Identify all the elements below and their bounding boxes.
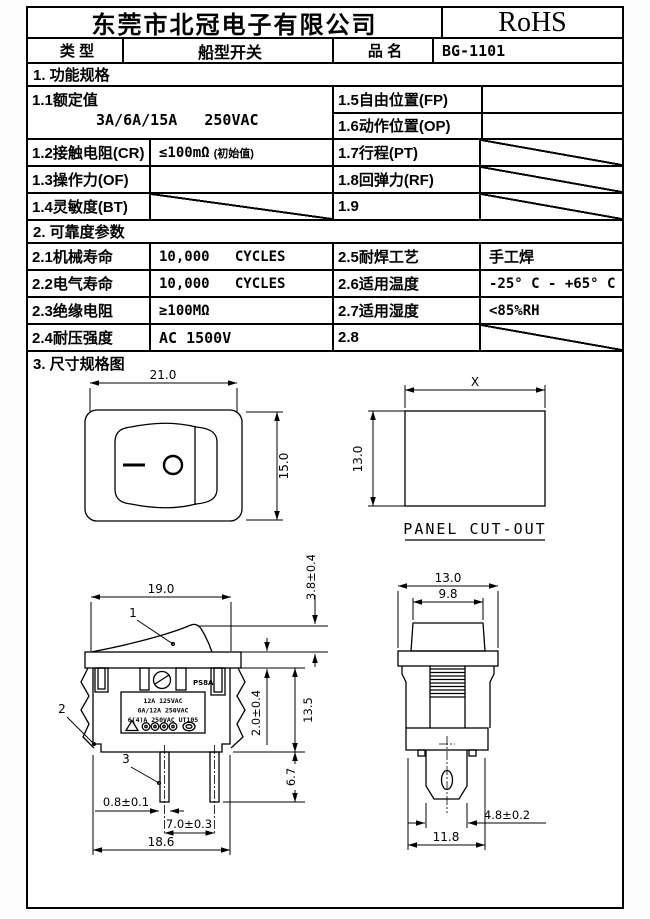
front-rocker [411, 623, 485, 651]
company-name: 东莞市北冠电子有限公司 [28, 8, 441, 37]
type-value: 船型开关 [122, 39, 332, 62]
rated-block-row: 1.1额定值 3A/6A/15A 250VAC 1.5自由位置(FP) 1.6动… [28, 87, 622, 140]
rohs-mark: RoHS [441, 8, 622, 37]
elec-temp-row: 2.2电气寿命 10,000 CYCLES 2.6适用温度 -25° C - +… [28, 271, 622, 298]
left-latch-inner [98, 668, 105, 689]
panel-cutout-caption: PANEL CUT-OUT [403, 520, 546, 538]
of-rf-row: 1.3操作力(OF) 1.8回弹力(RF) [28, 167, 622, 194]
n28-value-na [479, 325, 622, 350]
front-terminal [426, 750, 467, 799]
elec-label: 2.2电气寿命 [28, 271, 149, 296]
screw-slot [155, 675, 169, 684]
panel-cutout-drawing: X 13.0 PANEL CUT-OUT [348, 368, 578, 553]
product-row: 类 型 船型开关 品 名 BG-1101 [28, 39, 622, 64]
bt-19-row: 1.4灵敏度(BT) 1.9 [28, 194, 622, 221]
section2-row: 2. 可靠度参数 [28, 221, 622, 244]
right-latch-inner [214, 668, 222, 692]
pt-label: 1.7行程(PT) [332, 140, 479, 165]
terminal-length-text: 6.7 [284, 768, 298, 786]
flange-thickness-dim: 2.0±0.4 [249, 638, 267, 745]
cr-label: 1.2接触电阻(CR) [28, 140, 149, 165]
mold-marking: PS8A [193, 679, 214, 687]
section1-row: 1. 功能规格 [28, 64, 622, 87]
right-spring-clip [231, 668, 245, 748]
temp-value: -25° C - +65° C [479, 271, 622, 296]
name-value: BG-1101 [432, 39, 622, 62]
fp-row: 1.5自由位置(FP) [334, 87, 622, 114]
fp-op-block: 1.5自由位置(FP) 1.6动作位置(OP) [332, 87, 622, 138]
side-bottom-width-text: 18.6 [148, 835, 175, 849]
of-label: 1.3操作力(OF) [28, 167, 149, 192]
rated-value: 3A/6A/15A 250VAC [32, 111, 328, 129]
cutout-width-dim: X [405, 375, 545, 408]
flange-thickness-text: 2.0±0.4 [249, 690, 263, 736]
mech-label: 2.1机械寿命 [28, 244, 149, 269]
off-symbol-icon [164, 456, 182, 474]
rf-value-na [479, 167, 622, 192]
fp-value-empty [481, 87, 622, 112]
cr-note: (初始值) [210, 145, 254, 161]
left-post [140, 668, 149, 690]
cr-value: ≤100mΩ [151, 145, 210, 161]
side-top-width-dim: 19.0 [91, 582, 231, 651]
callout-2-text: 2 [58, 702, 66, 716]
volt-28-row: 2.4耐压强度 AC 1500V 2.8 [28, 325, 622, 352]
op-label: 1.6动作位置(OP) [334, 114, 481, 139]
cutout-width-text: X [471, 375, 479, 389]
rocker-profile [91, 624, 212, 652]
bt-label: 1.4灵敏度(BT) [28, 194, 149, 219]
cr-value-cell: ≤100mΩ (初始值) [149, 140, 332, 165]
mech-value: 10,000 CYCLES [149, 244, 332, 269]
volt-value: AC 1500V [149, 325, 332, 350]
rated-cell: 1.1额定值 3A/6A/15A 250VAC [28, 87, 332, 138]
body-height-text: 13.5 [301, 697, 315, 723]
top-view-width-text: 21.0 [150, 368, 177, 382]
ins-value: ≥100MΩ [149, 298, 332, 323]
solder-label: 2.5耐焊工艺 [332, 244, 479, 269]
section1-title: 1. 功能规格 [28, 64, 622, 85]
mech-solder-row: 2.1机械寿命 10,000 CYCLES 2.5耐焊工艺 手工焊 [28, 244, 622, 271]
n19-value-na [479, 194, 622, 219]
hum-value: <85%RH [479, 298, 622, 323]
rating-line1: 12A 125VAC [143, 697, 182, 705]
top-view-width-dim: 21.0 [90, 368, 237, 412]
mounting-flange [85, 652, 241, 668]
rf-label: 1.8回弹力(RF) [332, 167, 479, 192]
front-base-width-dim: 11.8 [408, 758, 485, 850]
terminal-thickness-text: 0.8±0.1 [103, 795, 149, 809]
bt-value-na [149, 194, 332, 219]
solder-value: 手工焊 [479, 244, 622, 269]
front-body-left [402, 666, 406, 728]
callout-3-text: 3 [122, 752, 130, 766]
terminal-pitch-dim: 7.0±0.3 [165, 817, 215, 833]
name-label: 品 名 [332, 39, 432, 62]
ins-label: 2.3绝缘电阻 [28, 298, 149, 323]
top-view-height-text: 15.0 [277, 453, 291, 480]
front-view-drawing: 13.0 9.8 [368, 568, 588, 860]
front-tab-left [418, 750, 425, 756]
front-tab-right [469, 750, 476, 756]
front-flange [398, 651, 498, 666]
cutout-height-dim: 13.0 [351, 411, 405, 506]
rocker-height-text: 3.8±0.4 [304, 555, 318, 600]
top-view-height-dim: 15.0 [246, 412, 291, 520]
terminal-pitch-text: 7.0±0.3 [166, 817, 212, 831]
front-neck-ribs [430, 666, 465, 728]
datasheet-page: 东莞市北冠电子有限公司 RoHS 类 型 船型开关 品 名 BG-1101 1.… [0, 0, 650, 919]
terminal-length-dim: 6.7 [223, 752, 305, 802]
front-rocker-width-dim: 9.8 [413, 587, 483, 620]
temp-label: 2.6适用温度 [332, 271, 479, 296]
cutout-rect [405, 411, 545, 506]
callout-3: 3 [122, 752, 160, 784]
top-view-drawing: 21.0 15.0 [55, 368, 305, 538]
right-post [176, 668, 186, 690]
front-base-width-text: 11.8 [433, 830, 460, 844]
pt-value-na [479, 140, 622, 165]
front-rocker-width-text: 9.8 [438, 587, 457, 601]
op-value-empty [481, 114, 622, 139]
front-body-right [490, 666, 494, 728]
rating-line2: 6A/12A 250VAC [138, 707, 189, 715]
elec-value: 10,000 CYCLES [149, 271, 332, 296]
type-label: 类 型 [28, 39, 122, 62]
front-flange-width-text: 13.0 [435, 571, 462, 585]
side-view-drawing: 19.0 PS8A 12A 125VAC 6A/12A 250VAC 6(4)A… [38, 555, 338, 870]
rocker-height-dim: 3.8±0.4 [198, 555, 328, 667]
terminal-thickness-dim: 0.8±0.1 [95, 795, 184, 811]
cr-pt-row: 1.2接触电阻(CR) ≤100mΩ (初始值) 1.7行程(PT) [28, 140, 622, 167]
callout-1-text: 1 [129, 606, 137, 620]
front-terminal-width-dim: 4.8±0.2 [408, 803, 546, 828]
cutout-height-text: 13.0 [351, 446, 365, 473]
n28-label: 2.8 [332, 325, 479, 350]
section2-title: 2. 可靠度参数 [28, 221, 622, 242]
side-top-width-text: 19.0 [148, 582, 175, 596]
fp-label: 1.5自由位置(FP) [334, 87, 481, 112]
of-value-empty [149, 167, 332, 192]
hum-label: 2.7适用湿度 [332, 298, 479, 323]
op-row: 1.6动作位置(OP) [334, 114, 622, 139]
title-row: 东莞市北冠电子有限公司 RoHS [28, 8, 622, 39]
n19-label: 1.9 [332, 194, 479, 219]
callout-1: 1 [129, 606, 174, 645]
volt-label: 2.4耐压强度 [28, 325, 149, 350]
left-spring-clip [81, 668, 94, 748]
rated-label: 1.1额定值 [32, 89, 328, 110]
ins-hum-row: 2.3绝缘电阻 ≥100MΩ 2.7适用湿度 <85%RH [28, 298, 622, 325]
front-terminal-width-text: 4.8±0.2 [484, 808, 530, 822]
callout-2: 2 [58, 702, 95, 745]
